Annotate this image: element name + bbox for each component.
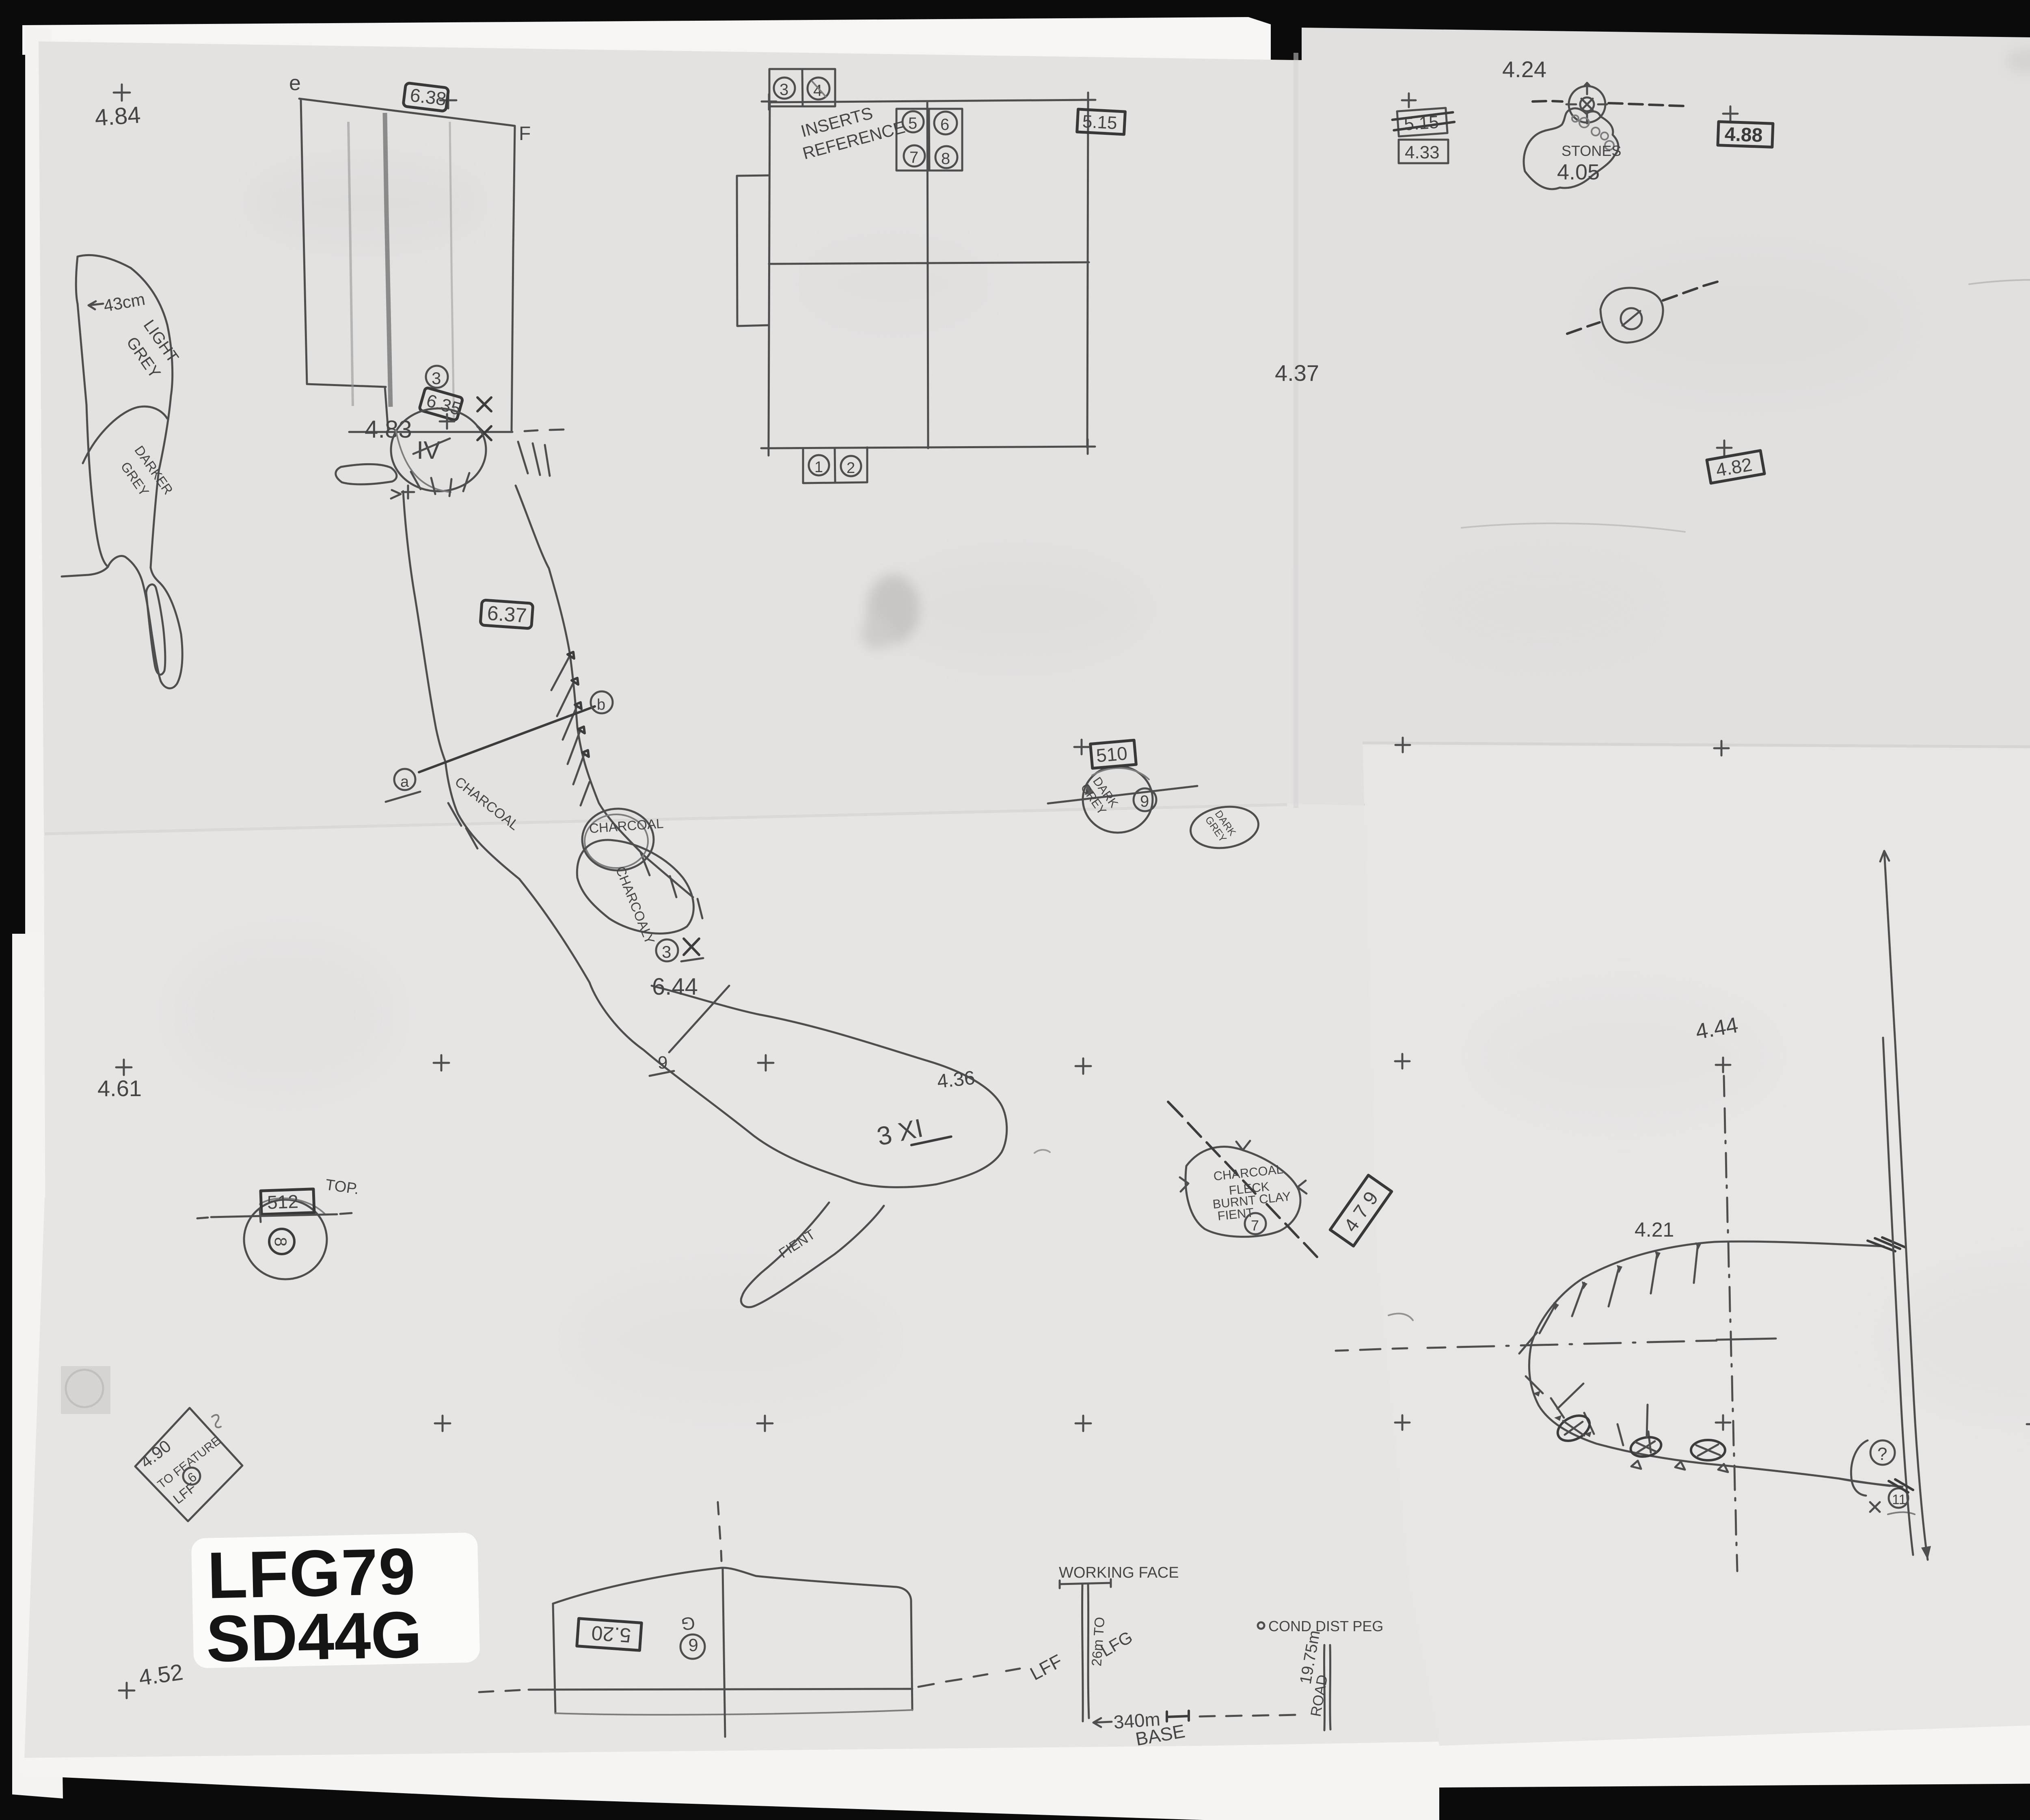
svg-text:8: 8 [941, 150, 950, 168]
svg-text:a: a [400, 773, 409, 790]
svg-text:5.15: 5.15 [1082, 112, 1118, 133]
svg-text:SD44G: SD44G [205, 1598, 423, 1676]
svg-text:4.84: 4.84 [94, 101, 141, 131]
svg-text:G: G [680, 1613, 696, 1634]
svg-text:9: 9 [1140, 792, 1149, 810]
svg-text:6.38: 6.38 [409, 84, 447, 110]
svg-text:e: e [289, 71, 301, 95]
svg-text:4.33: 4.33 [1405, 142, 1440, 162]
svg-text:3: 3 [432, 369, 441, 388]
svg-text:5.20: 5.20 [591, 1621, 632, 1647]
svg-text:512: 512 [267, 1191, 299, 1213]
svg-text:4.61: 4.61 [97, 1075, 142, 1101]
svg-text:4.37: 4.37 [1275, 360, 1319, 386]
svg-text:6: 6 [689, 1635, 698, 1655]
svg-text:4.21: 4.21 [1635, 1218, 1674, 1241]
svg-text:?: ? [1877, 1444, 1887, 1464]
svg-text:2: 2 [847, 460, 855, 477]
svg-text:6: 6 [940, 116, 949, 134]
svg-text:F: F [519, 123, 531, 145]
svg-text:4.88: 4.88 [1724, 123, 1763, 146]
svg-text:7: 7 [1251, 1217, 1259, 1234]
svg-text:6.37: 6.37 [486, 602, 527, 627]
svg-text:4.05: 4.05 [1557, 160, 1600, 184]
svg-text:3: 3 [780, 81, 788, 99]
svg-text:1: 1 [814, 459, 823, 476]
svg-text:510: 510 [1095, 743, 1128, 766]
svg-text:4.36: 4.36 [936, 1067, 976, 1092]
svg-text:8: 8 [271, 1237, 290, 1246]
svg-text:7: 7 [909, 149, 918, 166]
svg-text:5: 5 [908, 114, 917, 132]
svg-text:b: b [597, 696, 605, 713]
svg-text:WORKING FACE: WORKING FACE [1059, 1564, 1179, 1581]
svg-text:9: 9 [658, 1053, 667, 1073]
svg-text:11: 11 [1892, 1492, 1906, 1507]
svg-text:STONES: STONES [1561, 142, 1621, 159]
svg-text:COND DIST PEG: COND DIST PEG [1268, 1618, 1383, 1634]
svg-text:3: 3 [662, 942, 671, 961]
svg-text:4.24: 4.24 [1502, 56, 1546, 82]
svg-text:6.44: 6.44 [652, 974, 698, 1000]
